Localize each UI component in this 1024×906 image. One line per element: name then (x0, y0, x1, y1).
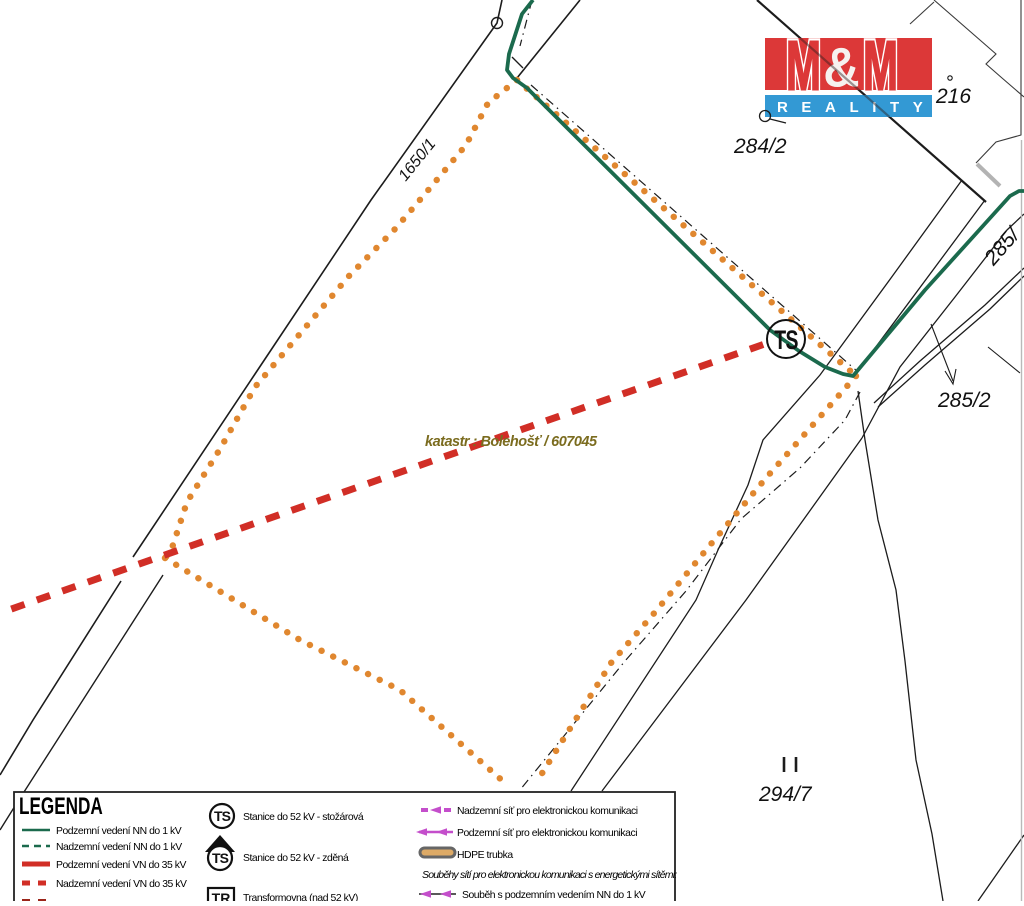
svg-text:M: M (863, 28, 898, 106)
svg-text:Podzemní síť pro elektronickou: Podzemní síť pro elektronickou komunikac… (457, 828, 637, 839)
svg-text:TS: TS (214, 808, 231, 824)
svg-text:Transformovna (nad 52 kV): Transformovna (nad 52 kV) (243, 893, 358, 901)
svg-text:katastr : Bolehošť / 607045: katastr : Bolehošť / 607045 (425, 434, 598, 450)
svg-text:M: M (786, 28, 821, 106)
svg-text:HDPE trubka: HDPE trubka (457, 850, 513, 861)
svg-text:285/2: 285/2 (937, 389, 991, 412)
svg-text:TS: TS (774, 325, 798, 355)
svg-text:Souběhy sítí pro elektronickou: Souběhy sítí pro elektronickou komunikac… (422, 869, 677, 881)
svg-text:TR: TR (212, 890, 231, 901)
svg-text:Stanice do 52 kV - zděná: Stanice do 52 kV - zděná (243, 853, 349, 864)
svg-text:Podzemní vedení VN do 35 kV: Podzemní vedení VN do 35 kV (56, 860, 186, 871)
svg-text:Nadzemní vedení VN do 35 kV: Nadzemní vedení VN do 35 kV (56, 879, 187, 890)
svg-text:Nadzemní síť pro elektronickou: Nadzemní síť pro elektronickou komunikac… (457, 806, 638, 817)
svg-text:Souběh s podzemním vedením NN: Souběh s podzemním vedením NN do 1 kV (462, 890, 646, 901)
svg-text:Podzemní vedení NN do 1 kV: Podzemní vedení NN do 1 kV (56, 826, 182, 837)
svg-text:TS: TS (212, 850, 229, 866)
svg-text:216: 216 (935, 85, 971, 108)
svg-text:&: & (823, 37, 859, 99)
svg-text:284/2: 284/2 (733, 135, 787, 158)
svg-text:294/7: 294/7 (758, 783, 813, 806)
svg-text:REALITY: REALITY (777, 99, 936, 116)
svg-text:LEGENDA: LEGENDA (19, 793, 103, 820)
svg-text:Stanice do 52 kV - stožárová: Stanice do 52 kV - stožárová (243, 812, 364, 823)
svg-text:Nadzemní vedení NN do 1 kV: Nadzemní vedení NN do 1 kV (56, 842, 182, 853)
